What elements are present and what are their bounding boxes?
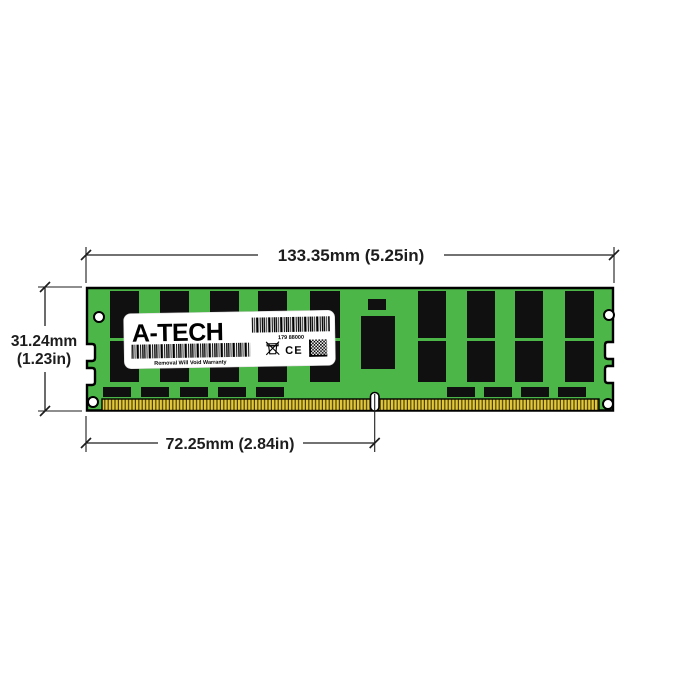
warranty-barcode-icon <box>131 343 250 359</box>
height-dimension-label-mm: 31.24mm <box>11 333 77 350</box>
buffer-chip <box>361 316 395 369</box>
ce-mark: CE <box>285 345 303 357</box>
product-label: A-TECH 179 88000 Removal Will Void Warra… <box>124 310 336 369</box>
small-chip <box>180 387 208 397</box>
small-chip <box>218 387 246 397</box>
qr-code-icon <box>309 339 327 357</box>
small-chip <box>558 387 586 397</box>
height-dimension: 31.24mm (1.23in) <box>11 282 82 416</box>
warranty-text: Removal Will Void Warranty <box>154 360 227 367</box>
pin-strip <box>102 399 599 411</box>
small-chip <box>521 387 549 397</box>
mounting-hole <box>604 310 614 320</box>
notch-dimension-label: 72.25mm (2.84in) <box>166 436 295 453</box>
height-dimension-label-in: (1.23in) <box>17 351 71 368</box>
memory-chip <box>515 291 543 338</box>
memory-chip <box>565 291 594 338</box>
small-chip <box>484 387 512 397</box>
memory-chip <box>418 291 446 338</box>
memory-chip <box>467 291 495 338</box>
memory-chip <box>565 341 594 382</box>
small-chip <box>103 387 131 397</box>
serial-number: 179 88000 <box>278 335 304 341</box>
mounting-hole <box>94 312 104 322</box>
ram-module: A-TECH 179 88000 Removal Will Void Warra… <box>87 288 614 411</box>
small-chip <box>447 387 475 397</box>
memory-chip <box>418 341 446 382</box>
serial-barcode-icon <box>252 316 330 332</box>
memory-chip <box>515 341 543 382</box>
width-dimension-label: 133.35mm (5.25in) <box>278 246 424 265</box>
diagram-canvas: A-TECH 179 88000 Removal Will Void Warra… <box>0 0 700 700</box>
small-chip <box>141 387 169 397</box>
width-dimension: 133.35mm (5.25in) <box>81 246 619 283</box>
brand-logo: A-TECH <box>132 318 224 348</box>
spd-chip <box>368 299 386 310</box>
small-chip <box>256 387 284 397</box>
mounting-hole <box>88 397 98 407</box>
mounting-hole <box>603 399 613 409</box>
memory-chip <box>467 341 495 382</box>
memory-module-dimension-diagram: A-TECH 179 88000 Removal Will Void Warra… <box>0 0 700 700</box>
